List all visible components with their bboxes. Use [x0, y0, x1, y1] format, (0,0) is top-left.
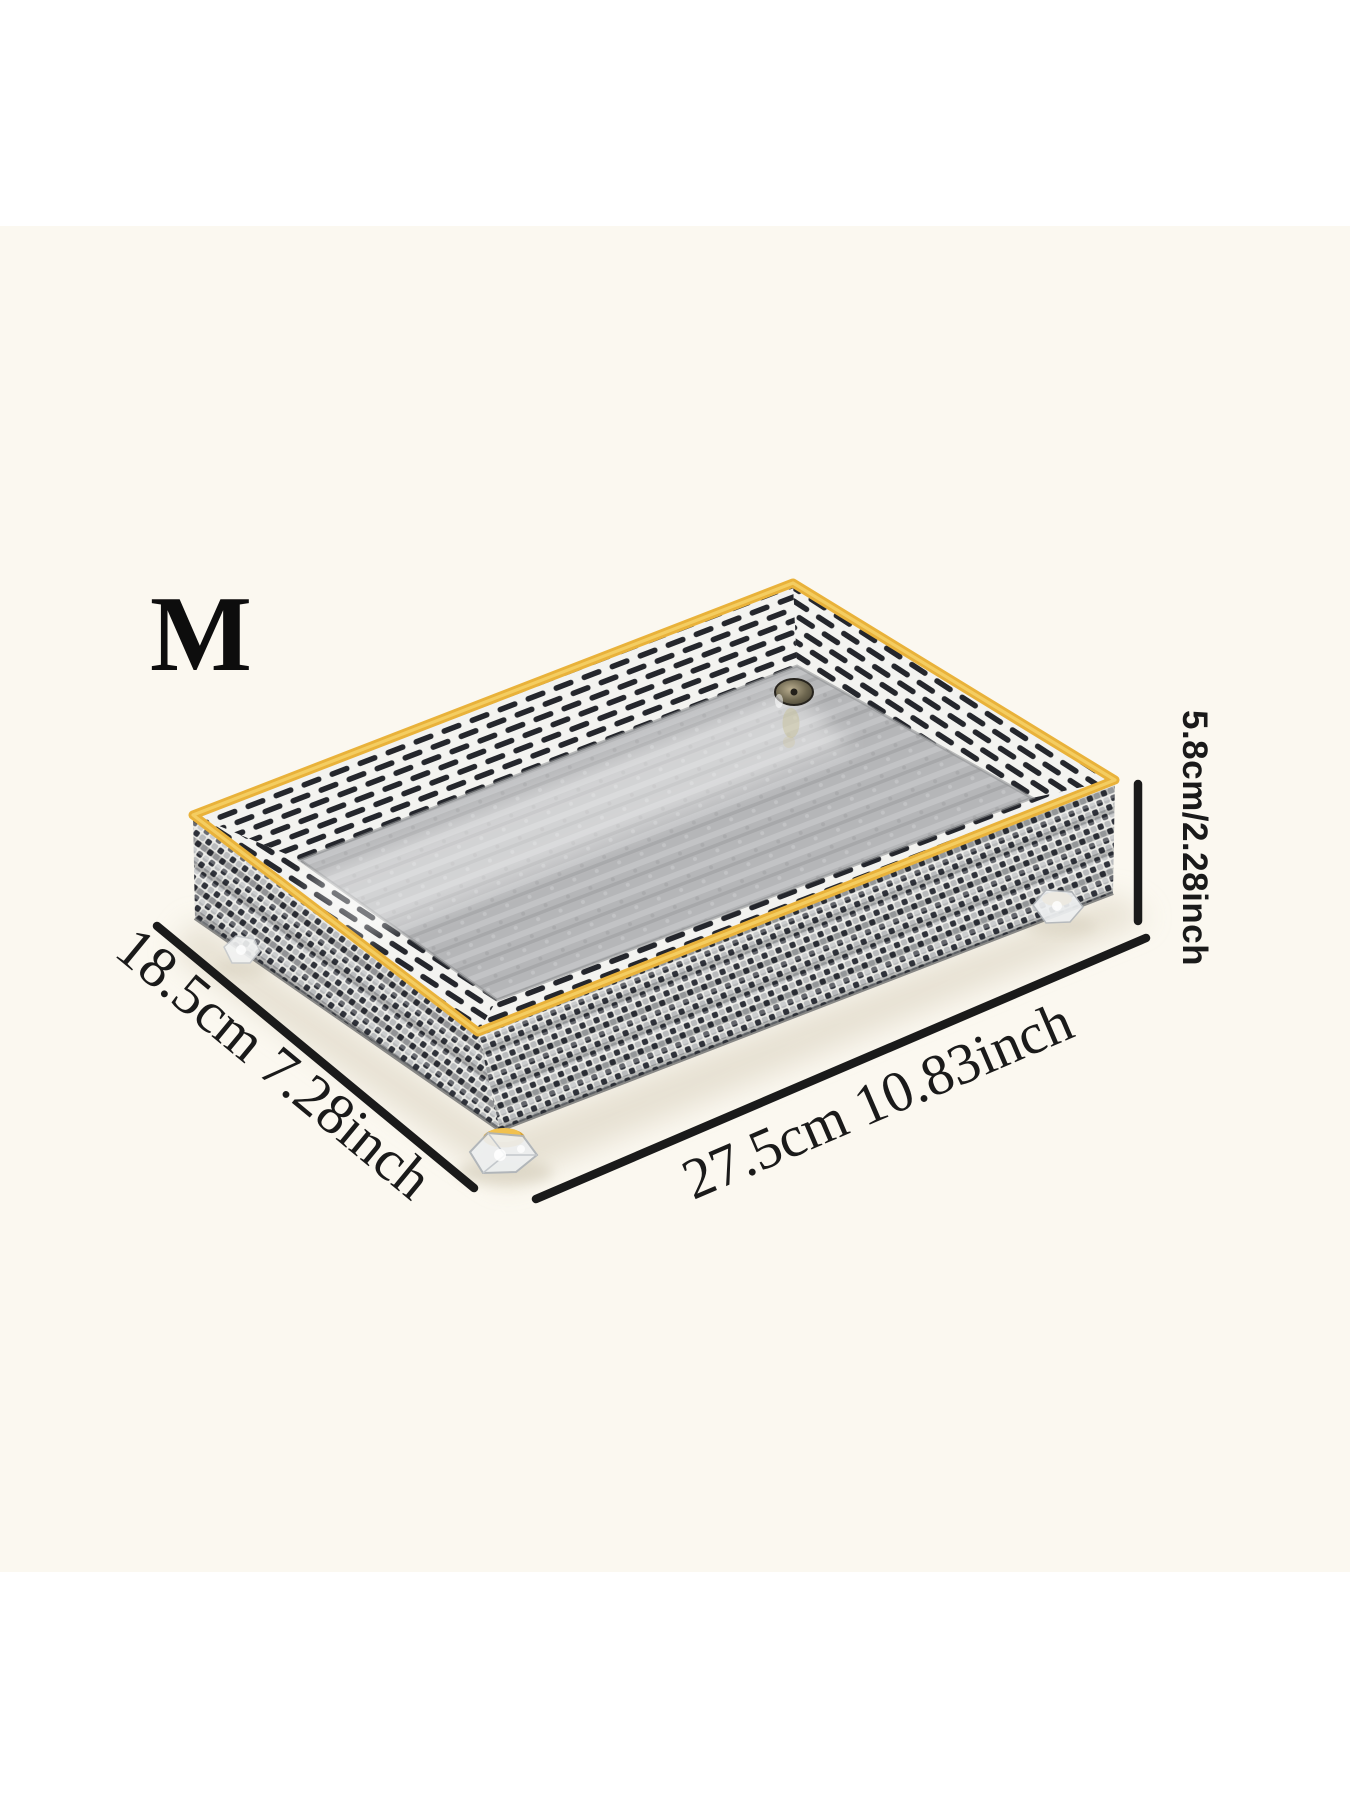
tray-illustration: 18.5cm 7.28inch 27.5cm 10.83inch 5.8cm/2…	[0, 0, 1350, 1800]
product-size-image: 18.5cm 7.28inch 27.5cm 10.83inch 5.8cm/2…	[0, 0, 1350, 1800]
height-dimension-label: 5.8cm/2.28inch	[1175, 710, 1214, 966]
size-label: M	[150, 575, 252, 694]
